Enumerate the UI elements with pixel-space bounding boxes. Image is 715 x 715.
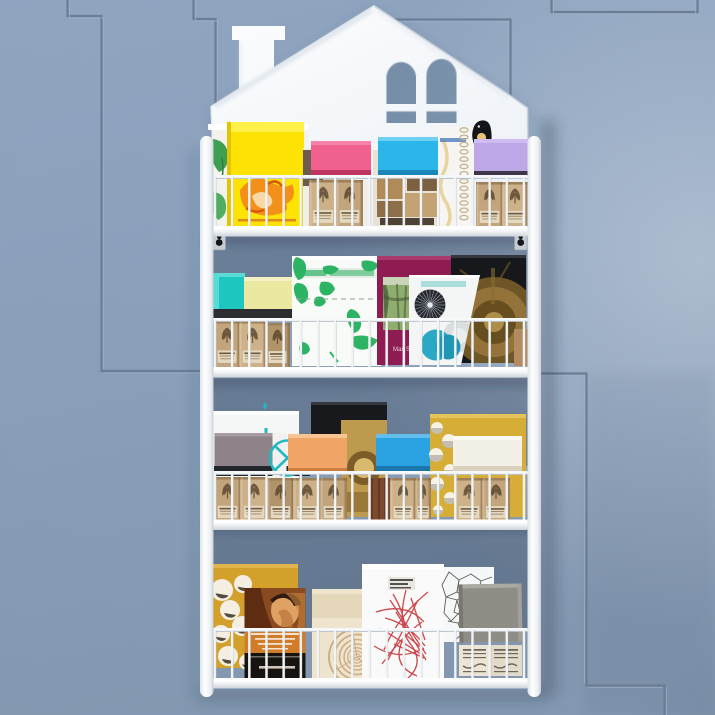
svg-text:Max S: Max S [393, 347, 410, 353]
